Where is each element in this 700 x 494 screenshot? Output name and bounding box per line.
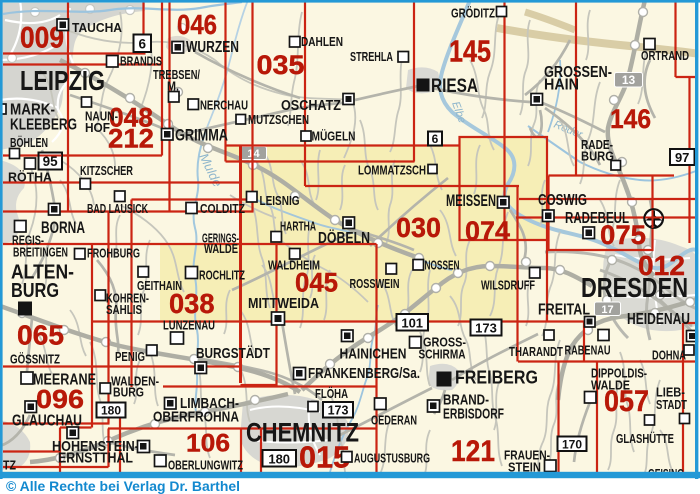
svg-text:NOSSEN: NOSSEN: [425, 258, 460, 273]
svg-text:046: 046: [177, 9, 217, 40]
svg-text:NERCHAU: NERCHAU: [200, 98, 248, 113]
svg-text:121: 121: [451, 435, 495, 468]
svg-text:FREIBERG: FREIBERG: [455, 368, 538, 388]
svg-text:OEDERAN: OEDERAN: [371, 413, 417, 428]
svg-text:065: 065: [17, 320, 64, 351]
svg-text:HAINICHEN: HAINICHEN: [340, 346, 407, 363]
svg-text:RABENAU: RABENAU: [565, 343, 611, 358]
svg-text:97: 97: [675, 150, 689, 165]
svg-text:BORNA: BORNA: [41, 219, 85, 237]
svg-text:074: 074: [465, 216, 510, 246]
svg-text:HAIN: HAIN: [544, 77, 579, 94]
svg-text:MUTZSCHEN: MUTZSCHEN: [248, 112, 309, 127]
svg-text:HOF: HOF: [85, 120, 110, 135]
svg-text:COLDITZ: COLDITZ: [200, 201, 245, 216]
svg-text:FREITAL: FREITAL: [538, 302, 590, 319]
svg-text:RIESA: RIESA: [431, 76, 478, 97]
svg-text:RADEBEUL: RADEBEUL: [565, 210, 629, 227]
svg-text:DOHNA: DOHNA: [652, 348, 686, 363]
svg-text:LUNZENAU: LUNZENAU: [163, 318, 215, 333]
svg-text:ROCHLITZ: ROCHLITZ: [199, 268, 245, 283]
svg-text:BURGSTÄDT: BURGSTÄDT: [196, 345, 270, 362]
svg-text:WURZEN: WURZEN: [186, 39, 239, 56]
svg-text:13: 13: [622, 73, 636, 87]
svg-text:STADT: STADT: [656, 397, 687, 412]
svg-text:WILSDRUFF: WILSDRUFF: [481, 278, 535, 293]
svg-text:ORTRAND: ORTRAND: [641, 48, 689, 63]
svg-text:14: 14: [247, 148, 260, 160]
svg-text:WALDE: WALDE: [591, 378, 630, 393]
svg-text:035: 035: [257, 50, 305, 80]
svg-text:173: 173: [328, 404, 349, 418]
svg-text:146: 146: [610, 104, 651, 134]
svg-text:© Alle Rechte bei Verlag Dr. B: © Alle Rechte bei Verlag Dr. Barthel: [6, 478, 240, 494]
svg-text:CHEMNITZ: CHEMNITZ: [246, 418, 359, 448]
svg-text:106: 106: [186, 430, 230, 458]
svg-text:101: 101: [401, 315, 423, 330]
svg-text:212: 212: [108, 124, 154, 154]
svg-text:THARANDT: THARANDT: [509, 344, 563, 359]
svg-text:TAUCHA: TAUCHA: [72, 20, 123, 35]
svg-text:AUGUSTUSBURG: AUGUSTUSBURG: [354, 451, 430, 466]
svg-text:ERNSTTHAL: ERNSTTHAL: [58, 450, 133, 467]
svg-text:KLEEBERG: KLEEBERG: [10, 117, 77, 134]
svg-text:COSWIG: COSWIG: [538, 192, 587, 209]
svg-text:HEIDENAU: HEIDENAU: [627, 311, 690, 328]
svg-text:ERBISDORF: ERBISDORF: [443, 406, 504, 423]
svg-text:BAD LAUSICK: BAD LAUSICK: [87, 201, 148, 216]
svg-text:DRESDEN: DRESDEN: [581, 272, 688, 303]
svg-text:SAHLIS: SAHLIS: [106, 302, 142, 317]
svg-text:6: 6: [432, 132, 439, 146]
svg-text:GÖSSNITZ: GÖSSNITZ: [10, 352, 60, 367]
svg-text:MEISSEN: MEISSEN: [446, 191, 496, 210]
svg-text:PENIG: PENIG: [115, 349, 145, 364]
svg-text:WALDHEIM: WALDHEIM: [268, 258, 320, 273]
svg-text:WALDE: WALDE: [204, 241, 238, 256]
svg-text:180: 180: [101, 404, 121, 418]
svg-text:DÖBELN: DÖBELN: [318, 228, 370, 247]
svg-text:KITZSCHER: KITZSCHER: [80, 163, 133, 178]
svg-text:BURG: BURG: [113, 385, 144, 400]
svg-text:SCHIRMA: SCHIRMA: [419, 347, 466, 362]
svg-text:FROHBURG: FROHBURG: [87, 246, 140, 261]
svg-text:FRANKENBERG/Sa.: FRANKENBERG/Sa.: [308, 365, 420, 382]
svg-text:GLASHÜTTE: GLASHÜTTE: [616, 431, 674, 446]
svg-text:MITTWEIDA: MITTWEIDA: [248, 295, 319, 312]
svg-text:096: 096: [36, 384, 84, 414]
svg-text:BURG: BURG: [581, 149, 614, 164]
svg-text:OBERFROHNA: OBERFROHNA: [153, 409, 239, 426]
svg-text:GRIMMA: GRIMMA: [175, 127, 228, 145]
svg-text:GRÖDITZ: GRÖDITZ: [451, 6, 495, 21]
svg-text:OBERLUNGWITZ: OBERLUNGWITZ: [168, 458, 243, 473]
svg-text:173: 173: [475, 321, 497, 336]
svg-text:17: 17: [601, 304, 613, 316]
svg-text:RÖTHA: RÖTHA: [8, 170, 53, 185]
svg-text:LEISNIG: LEISNIG: [260, 193, 300, 208]
svg-text:ROSSWEIN: ROSSWEIN: [350, 276, 400, 291]
svg-text:180: 180: [268, 451, 290, 466]
svg-text:145: 145: [449, 35, 491, 69]
svg-text:6: 6: [138, 37, 146, 52]
svg-text:MÜGELN: MÜGELN: [312, 129, 356, 144]
svg-text:DAHLEN: DAHLEN: [301, 34, 343, 49]
svg-text:HARTHA: HARTHA: [280, 219, 316, 234]
svg-text:BREITINGEN: BREITINGEN: [13, 245, 68, 260]
svg-text:030: 030: [396, 212, 441, 243]
svg-text:MEERANE: MEERANE: [33, 372, 96, 389]
svg-text:STREHLA: STREHLA: [350, 49, 393, 64]
svg-text:FLÖHA: FLÖHA: [315, 386, 348, 401]
svg-text:LOMMATZSCH: LOMMATZSCH: [358, 163, 426, 178]
svg-text:LEIPZIG: LEIPZIG: [20, 65, 105, 96]
svg-text:170: 170: [562, 437, 582, 451]
svg-text:BURG: BURG: [11, 280, 59, 302]
